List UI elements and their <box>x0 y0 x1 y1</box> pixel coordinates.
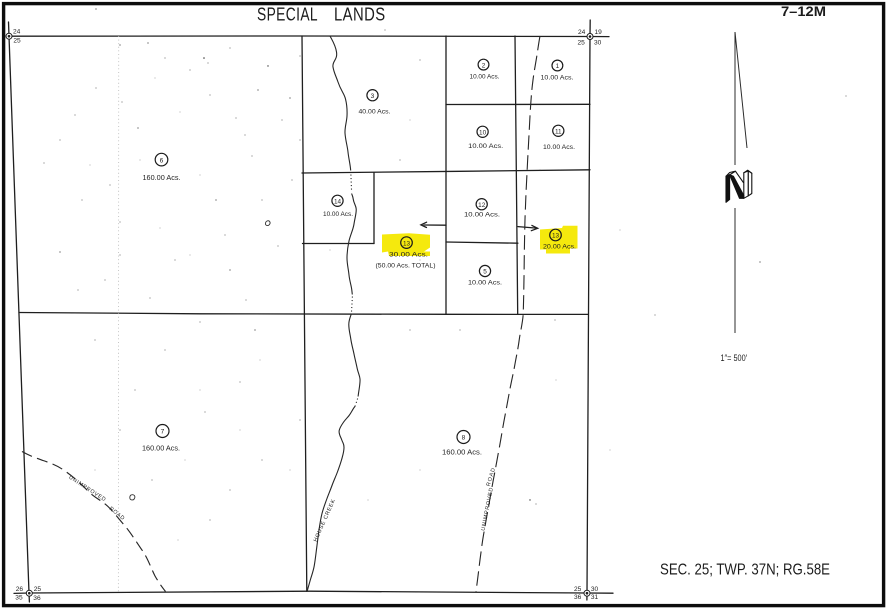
svg-text:13: 13 <box>552 233 560 240</box>
svg-text:10.00 Acs.: 10.00 Acs. <box>541 75 574 82</box>
svg-text:10.00 Acs.: 10.00 Acs. <box>464 212 500 219</box>
svg-text:6: 6 <box>160 157 164 164</box>
svg-text:36: 36 <box>33 595 41 602</box>
svg-text:10.00 Acs.: 10.00 Acs. <box>470 74 500 81</box>
svg-text:10.00 Acs.: 10.00 Acs. <box>543 144 575 151</box>
svg-text:24: 24 <box>578 29 586 36</box>
svg-text:25: 25 <box>34 586 42 593</box>
svg-text:7: 7 <box>161 429 165 436</box>
svg-text:19: 19 <box>595 29 603 36</box>
svg-text:SPECIAL: SPECIAL <box>257 5 318 25</box>
svg-text:160.00 Acs.: 160.00 Acs. <box>142 444 180 453</box>
svg-text:8: 8 <box>462 435 466 442</box>
svg-text:36: 36 <box>574 594 582 601</box>
svg-text:31: 31 <box>591 594 599 601</box>
svg-text:30: 30 <box>594 40 602 47</box>
svg-text:SEC. 25; TWP. 37N; RG.58E: SEC. 25; TWP. 37N; RG.58E <box>660 562 830 579</box>
svg-text:1: 1 <box>556 63 560 70</box>
svg-text:10.00 Acs.: 10.00 Acs. <box>468 143 503 150</box>
svg-text:2: 2 <box>482 62 486 69</box>
svg-text:11: 11 <box>555 129 562 136</box>
svg-text:30: 30 <box>591 586 599 593</box>
svg-text:3: 3 <box>371 93 375 100</box>
svg-text:35: 35 <box>15 595 23 602</box>
svg-text:20.00 Acs.: 20.00 Acs. <box>543 244 576 251</box>
svg-text:24: 24 <box>13 28 21 35</box>
svg-text:160.00 Acs.: 160.00 Acs. <box>143 173 181 182</box>
svg-text:40.00 Acs.: 40.00 Acs. <box>359 109 391 116</box>
svg-text:30.00 Acs.: 30.00 Acs. <box>389 252 428 259</box>
svg-text:12: 12 <box>478 202 486 209</box>
svg-text:10: 10 <box>479 130 487 137</box>
svg-text:(50.00 Acs. TOTAL): (50.00 Acs. TOTAL) <box>376 262 436 269</box>
svg-text:1″= 500′: 1″= 500′ <box>721 353 748 363</box>
svg-text:160.00 Acs.: 160.00 Acs. <box>442 448 482 457</box>
svg-text:7–12M: 7–12M <box>781 3 826 19</box>
svg-text:5: 5 <box>483 269 487 276</box>
svg-text:26: 26 <box>16 586 24 593</box>
svg-text:14: 14 <box>334 199 342 206</box>
svg-text:25: 25 <box>13 37 21 44</box>
svg-text:LANDS: LANDS <box>334 5 386 25</box>
svg-text:10.00 Acs.: 10.00 Acs. <box>468 279 502 286</box>
svg-text:25: 25 <box>578 40 586 47</box>
svg-text:10.00 Acs.: 10.00 Acs. <box>323 211 353 218</box>
svg-text:13: 13 <box>403 240 411 247</box>
svg-text:25: 25 <box>574 586 582 593</box>
